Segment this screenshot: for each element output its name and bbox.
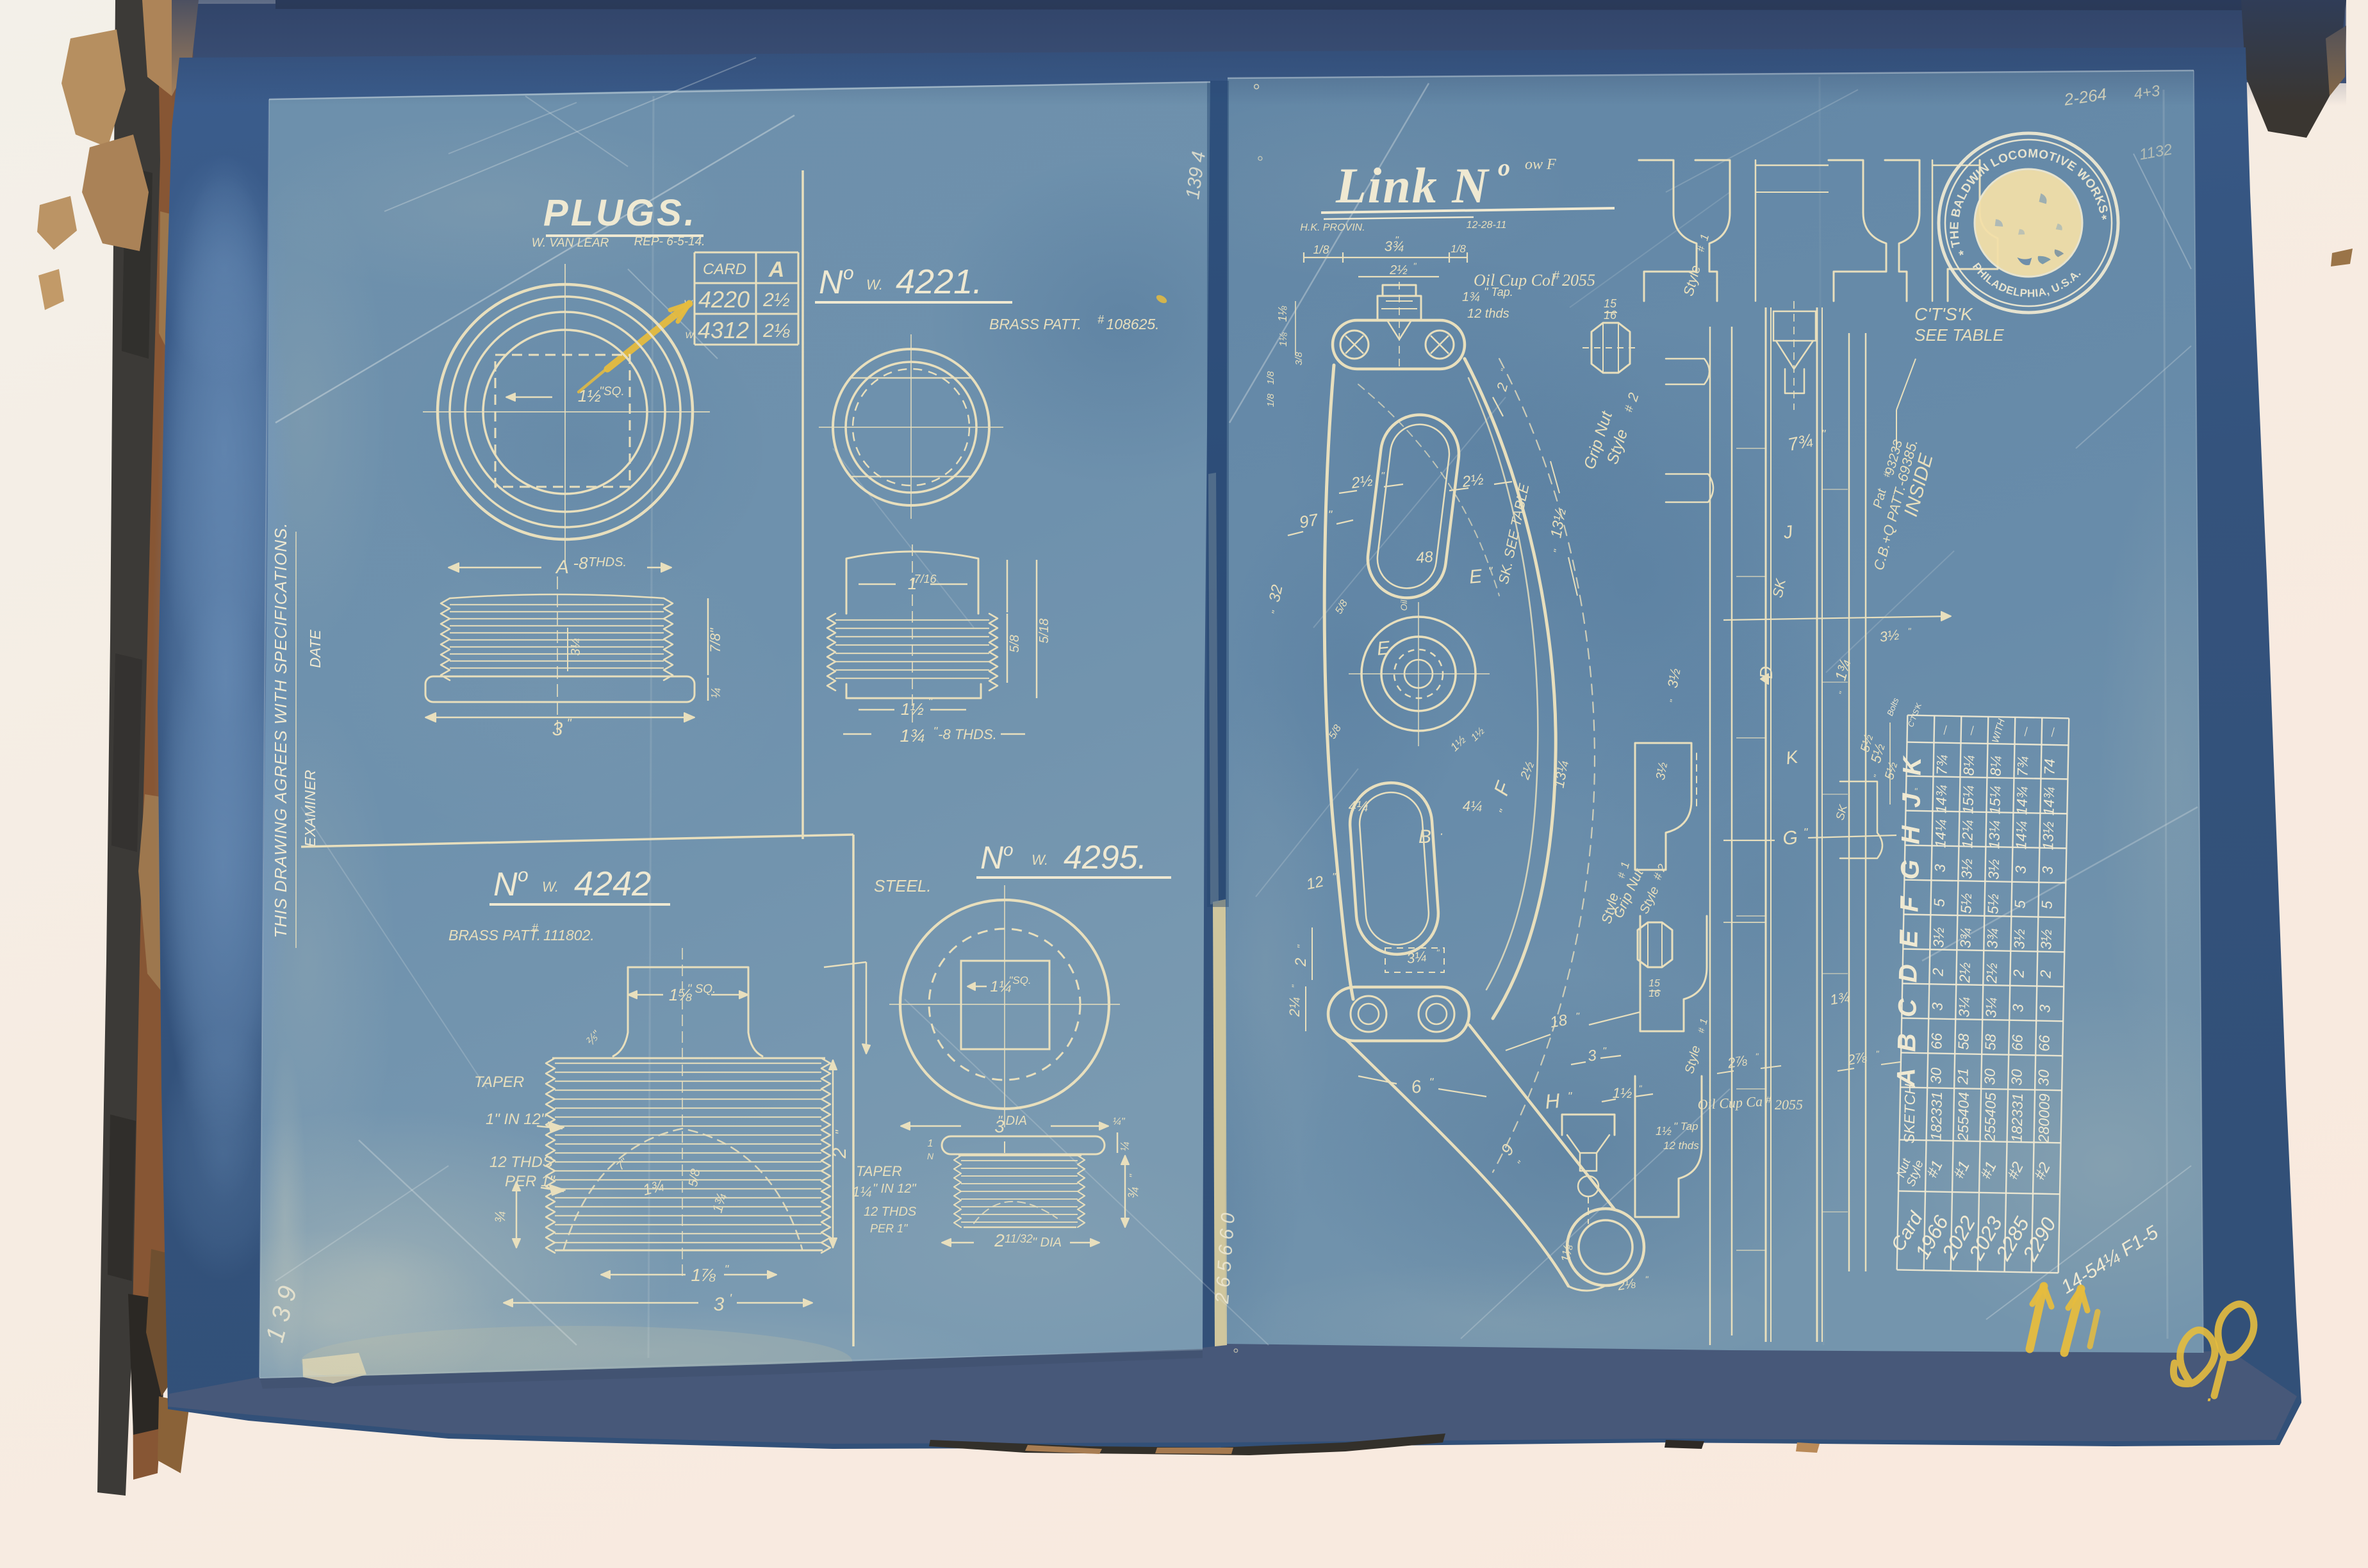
svg-text:4¼: 4¼ — [1463, 798, 1483, 814]
svg-text:3½: 3½ — [1958, 858, 1975, 879]
svg-text:E: E — [1376, 637, 1392, 660]
svg-text:°: ° — [1232, 1346, 1238, 1363]
svg-text:·: · — [1440, 827, 1444, 841]
svg-text:58: 58 — [1955, 1033, 1971, 1050]
svg-text:1/8: 1/8 — [1265, 371, 1276, 385]
svg-text:15¼: 15¼ — [1959, 785, 1977, 814]
svg-text:": " — [566, 717, 571, 731]
svg-text:4220: 4220 — [698, 286, 750, 313]
svg-text:-8: -8 — [573, 553, 588, 573]
svg-text:1/8: 1/8 — [1265, 393, 1276, 407]
svg-text:3¼: 3¼ — [569, 638, 583, 656]
svg-text:7/8": 7/8" — [707, 628, 723, 653]
svg-text:2: 2 — [2010, 969, 2027, 978]
svg-text:16: 16 — [1604, 309, 1617, 322]
svg-text:¼: ¼ — [709, 688, 723, 699]
svg-text:H.K. PROVIN.: H.K. PROVIN. — [1300, 222, 1365, 233]
svg-text:N: N — [819, 264, 843, 301]
svg-text:5/8: 5/8 — [1008, 635, 1022, 653]
svg-text:182331: 182331 — [2009, 1093, 2026, 1142]
svg-text:15: 15 — [1604, 297, 1617, 310]
svg-text:12 thds: 12 thds — [1467, 307, 1509, 321]
svg-text:8¼: 8¼ — [1961, 755, 1978, 776]
svg-text:13½: 13½ — [2039, 821, 2057, 850]
svg-text:13¼: 13¼ — [1986, 821, 2003, 849]
svg-text:TAPER: TAPER — [474, 1074, 524, 1091]
svg-text:3½: 3½ — [1930, 927, 1947, 947]
svg-text:" IN 12": " IN 12" — [873, 1182, 916, 1196]
svg-text:¼": ¼" — [1112, 1116, 1125, 1127]
svg-text:REP- 6-5-14.: REP- 6-5-14. — [634, 235, 705, 249]
svg-text:108625.: 108625. — [1106, 316, 1159, 332]
svg-text:E: E — [1895, 929, 1923, 948]
svg-text:W.: W. — [1032, 852, 1048, 868]
svg-text:": " — [834, 1130, 848, 1135]
svg-text:1¾: 1¾ — [1462, 290, 1480, 304]
svg-text:-8 THDS.: -8 THDS. — [938, 726, 997, 742]
svg-text:G: G — [1896, 860, 1925, 880]
svg-text:F: F — [1895, 895, 1923, 912]
svg-text:14¾: 14¾ — [2013, 786, 2030, 815]
svg-text:111802.: 111802. — [543, 927, 595, 943]
svg-text:A: A — [555, 557, 569, 578]
svg-text:SKETCH: SKETCH — [1900, 1083, 1918, 1143]
svg-text:"SQ.: "SQ. — [1008, 974, 1031, 986]
svg-text:#: # — [1098, 313, 1105, 326]
svg-text:66: 66 — [1928, 1033, 1945, 1049]
svg-text:280009: 280009 — [2035, 1093, 2053, 1143]
svg-text:TAPER: TAPER — [856, 1163, 902, 1179]
svg-text:11/32: 11/32 — [1005, 1232, 1033, 1245]
svg-text:o: o — [518, 865, 529, 886]
svg-text:1⅛: 1⅛ — [1278, 332, 1289, 347]
svg-text:PER 1": PER 1" — [505, 1173, 555, 1190]
svg-text:"SQ.: "SQ. — [599, 385, 624, 398]
svg-text:A: A — [768, 257, 785, 282]
svg-text:4242: 4242 — [574, 865, 651, 903]
svg-text:Link N: Link N — [1335, 158, 1490, 213]
svg-text:N: N — [927, 1151, 934, 1161]
svg-text:2: 2 — [994, 1230, 1005, 1250]
svg-text:THDS.: THDS. — [588, 555, 627, 569]
svg-text:2: 2 — [1929, 968, 1946, 977]
svg-text:BRASS PATT.: BRASS PATT. — [989, 316, 1081, 332]
svg-text:3½: 3½ — [1985, 859, 2002, 879]
svg-text:2½: 2½ — [762, 290, 790, 311]
svg-text:J: J — [1898, 792, 1926, 808]
svg-text:1¾: 1¾ — [900, 726, 925, 746]
svg-text:C: C — [1893, 998, 1922, 1018]
svg-text:N: N — [980, 840, 1004, 876]
svg-text:3: 3 — [2009, 1004, 2026, 1012]
svg-text:4+3: 4+3 — [2133, 82, 2162, 102]
svg-text:21: 21 — [1954, 1068, 1971, 1085]
svg-text:66: 66 — [2009, 1034, 2025, 1051]
svg-text:14¼: 14¼ — [2012, 821, 2030, 849]
svg-text:5: 5 — [1931, 899, 1948, 907]
svg-text:3¼: 3¼ — [1406, 948, 1427, 967]
svg-text:30: 30 — [2008, 1069, 2025, 1086]
svg-text:182331: 182331 — [1928, 1091, 1945, 1141]
svg-text:3¾: 3¾ — [1385, 238, 1404, 254]
svg-text:W.: W. — [542, 879, 559, 895]
svg-text:PLUGS.: PLUGS. — [543, 192, 697, 234]
svg-text:1/8: 1/8 — [1451, 243, 1466, 255]
svg-text:" DIA: " DIA — [1032, 1236, 1062, 1250]
svg-text:°: ° — [1256, 152, 1263, 172]
svg-text:B: B — [1893, 1033, 1921, 1052]
svg-text:E: E — [1468, 566, 1484, 588]
svg-text:W: W — [685, 330, 695, 340]
svg-text:3: 3 — [2039, 866, 2056, 874]
svg-text:2: 2 — [829, 1147, 850, 1159]
svg-text:1½: 1½ — [901, 699, 924, 719]
svg-text:30: 30 — [1927, 1067, 1944, 1084]
svg-text:ow F: ow F — [1525, 156, 1556, 173]
svg-text:G: G — [1782, 827, 1798, 849]
svg-text:3: 3 — [714, 1294, 725, 1315]
svg-text:3: 3 — [2012, 865, 2029, 874]
svg-text:5½: 5½ — [1984, 894, 2002, 914]
svg-text:STEEL.: STEEL. — [874, 876, 932, 895]
svg-text:2: 2 — [1292, 958, 1310, 967]
svg-text:#: # — [532, 922, 539, 935]
svg-text:12: 12 — [1305, 873, 1326, 894]
svg-text:2½: 2½ — [1956, 962, 1973, 983]
svg-text:THIS DRAWING AGREES WITH SPECI: THIS DRAWING AGREES WITH SPECIFICATIONS. — [271, 522, 290, 938]
svg-text:3½: 3½ — [2010, 929, 2028, 949]
svg-text:5: 5 — [2012, 900, 2028, 908]
svg-text:2½: 2½ — [1350, 472, 1374, 493]
svg-text:3½: 3½ — [2037, 929, 2055, 950]
svg-text:SEE TABLE: SEE TABLE — [1914, 325, 2004, 345]
svg-text:58: 58 — [1982, 1034, 1998, 1050]
svg-text:2055: 2055 — [1562, 271, 1595, 290]
svg-text:48: 48 — [1415, 548, 1435, 567]
svg-text:1/8: 1/8 — [1313, 243, 1329, 256]
svg-text:15: 15 — [1649, 978, 1660, 989]
svg-text:" Tap: " Tap — [1673, 1120, 1698, 1132]
svg-text:3: 3 — [2036, 1004, 2053, 1013]
svg-text:K: K — [1898, 755, 1927, 776]
svg-text:14¾: 14¾ — [2040, 787, 2057, 815]
svg-text:1½: 1½ — [1656, 1125, 1672, 1138]
svg-text:12 thds: 12 thds — [1663, 1139, 1699, 1152]
svg-text:4312: 4312 — [698, 317, 749, 343]
svg-text:12-28-11: 12-28-11 — [1467, 220, 1507, 231]
svg-text:3¼: 3¼ — [1955, 997, 1973, 1017]
svg-text:1⅞: 1⅞ — [691, 1265, 716, 1285]
svg-text:5: 5 — [2039, 901, 2055, 909]
svg-text:EXAMINER: EXAMINER — [302, 770, 318, 847]
svg-text:8¼: 8¼ — [1987, 755, 2004, 776]
svg-text:14¼: 14¼ — [1932, 819, 1949, 848]
svg-text:1: 1 — [928, 1138, 933, 1149]
svg-text:3: 3 — [552, 719, 563, 740]
svg-text:3: 3 — [1932, 864, 1948, 872]
svg-text:W. VAN LEAR: W. VAN LEAR — [532, 236, 609, 250]
svg-text:3½: 3½ — [1879, 626, 1900, 645]
svg-text:7¾: 7¾ — [2014, 756, 2031, 776]
svg-text:7¾: 7¾ — [1934, 755, 1951, 775]
svg-text:Oil Cup Ca: Oil Cup Ca — [1697, 1093, 1763, 1113]
svg-text:1¼: 1¼ — [852, 1184, 872, 1200]
svg-text:74: 74 — [2041, 758, 2058, 775]
svg-text:3¼: 3¼ — [1982, 997, 2000, 1018]
svg-text:12 THDS: 12 THDS — [864, 1205, 917, 1219]
svg-text:o: o — [1498, 154, 1510, 181]
svg-text:2055: 2055 — [1775, 1097, 1803, 1113]
svg-text:30: 30 — [2035, 1070, 2051, 1086]
svg-text:1½: 1½ — [578, 386, 601, 405]
svg-text:2: 2 — [2037, 970, 2053, 979]
svg-text:66: 66 — [2035, 1035, 2052, 1052]
svg-text:" SQ.: " SQ. — [687, 983, 716, 996]
svg-text:15¼: 15¼ — [1986, 786, 2003, 815]
svg-text:2⅛: 2⅛ — [762, 320, 790, 341]
svg-text:PER 1": PER 1" — [870, 1222, 909, 1235]
svg-text:16: 16 — [1649, 988, 1660, 999]
svg-text:#: # — [1553, 269, 1560, 282]
svg-text:Oil: Oil — [1399, 600, 1409, 611]
svg-text:°: ° — [1252, 81, 1260, 102]
svg-text:1¾: 1¾ — [1829, 989, 1850, 1008]
svg-text:12¼: 12¼ — [1959, 820, 1976, 849]
svg-text:" DIA: " DIA — [998, 1114, 1027, 1128]
svg-text:4¼: 4¼ — [1349, 798, 1369, 814]
svg-text:DATE: DATE — [307, 630, 324, 668]
svg-text:H: H — [1544, 1089, 1561, 1113]
svg-text:3: 3 — [1928, 1002, 1945, 1011]
svg-text:CARD: CARD — [703, 261, 746, 278]
svg-text:255404: 255404 — [1955, 1092, 1972, 1142]
svg-text:BRASS PATT.: BRASS PATT. — [448, 927, 541, 943]
svg-text:o: o — [843, 263, 854, 284]
svg-text:255405: 255405 — [1982, 1092, 1999, 1142]
svg-text:1⅛: 1⅛ — [1276, 306, 1289, 322]
svg-text:¾: ¾ — [1125, 1187, 1141, 1198]
svg-text:5/18: 5/18 — [1037, 619, 1051, 644]
svg-text:B: B — [1418, 826, 1431, 847]
svg-text:32: 32 — [1266, 584, 1287, 604]
svg-text:3¾: 3¾ — [1957, 927, 1974, 948]
svg-text:18: 18 — [1549, 1011, 1569, 1031]
svg-text:H: H — [1896, 825, 1925, 845]
svg-text:4295.: 4295. — [1064, 839, 1147, 876]
svg-text:4221.: 4221. — [896, 263, 982, 301]
svg-text:C'T'S'K: C'T'S'K — [1914, 304, 1973, 324]
svg-text:D: D — [1894, 964, 1923, 983]
svg-text:30: 30 — [1981, 1068, 1998, 1085]
svg-text:¼: ¼ — [1119, 1141, 1131, 1151]
svg-text:12 THDS: 12 THDS — [489, 1154, 553, 1171]
svg-text:2¼: 2¼ — [1287, 997, 1303, 1018]
svg-text:3¾: 3¾ — [1984, 928, 2001, 949]
svg-text:5½: 5½ — [1957, 893, 1975, 913]
svg-text:7/16: 7/16 — [914, 573, 937, 585]
svg-text:W.: W. — [866, 277, 883, 293]
svg-text:2½: 2½ — [1461, 471, 1485, 491]
svg-text:¾: ¾ — [492, 1211, 508, 1223]
svg-text:Oil Cup Col: Oil Cup Col — [1474, 271, 1555, 290]
svg-text:N: N — [493, 866, 518, 903]
svg-text:3½: 3½ — [1665, 667, 1684, 689]
svg-text:2½: 2½ — [1983, 963, 2000, 984]
svg-text:2½: 2½ — [1389, 263, 1408, 277]
svg-text:·: · — [2205, 1384, 2213, 1412]
svg-text:14¾: 14¾ — [1932, 785, 1950, 813]
svg-text:o: o — [1003, 840, 1014, 860]
